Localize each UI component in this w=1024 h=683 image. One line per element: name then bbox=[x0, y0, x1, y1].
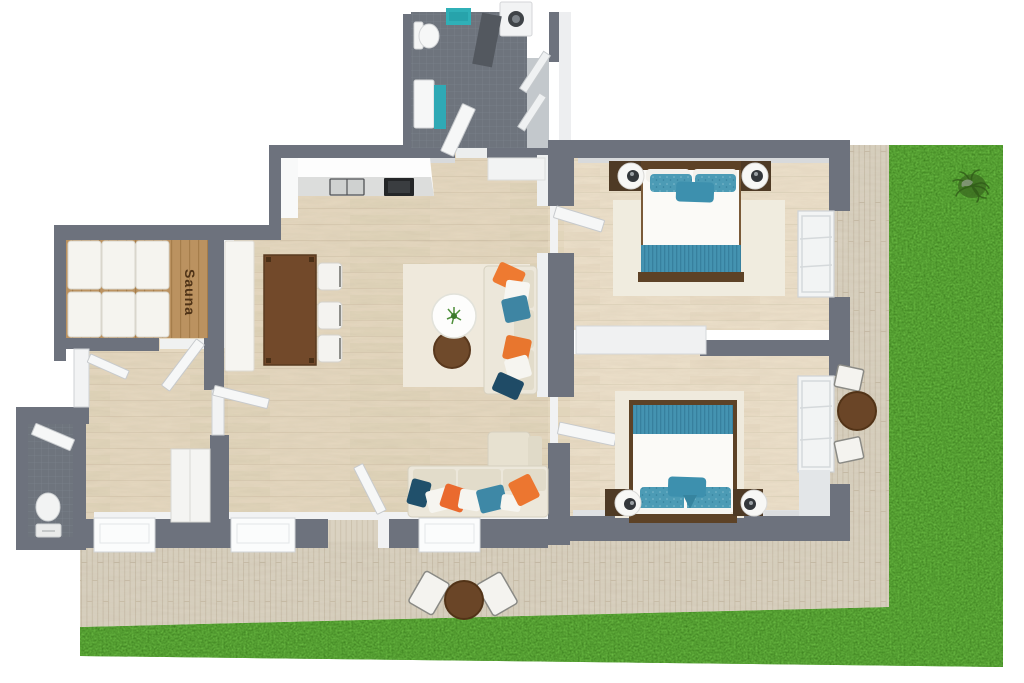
svg-text:Sauna: Sauna bbox=[182, 269, 198, 316]
